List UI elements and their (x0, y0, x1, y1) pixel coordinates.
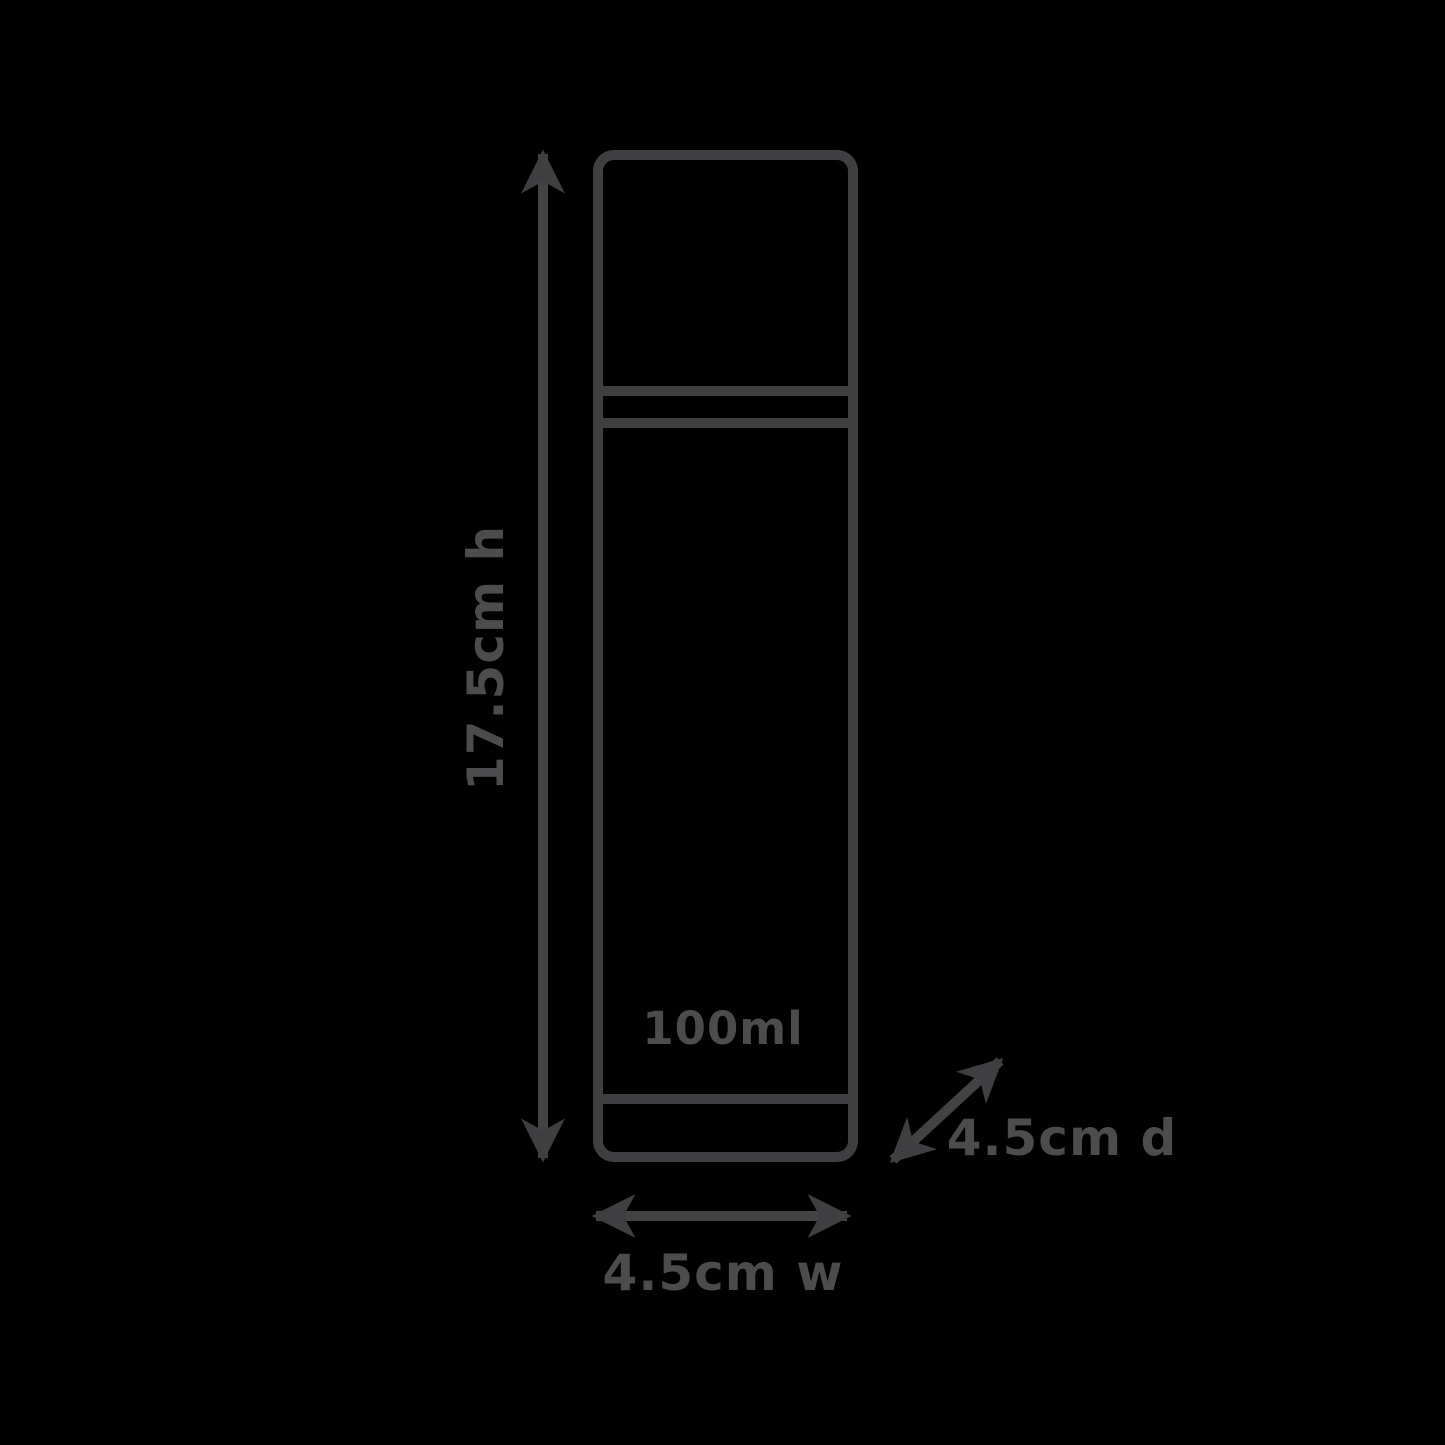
height-label: 17.5cm h (457, 525, 515, 791)
dimension-diagram: 17.5cm h 100ml 4.5cm w 4.5cm d (0, 0, 1445, 1445)
width-label: 4.5cm w (603, 1244, 844, 1302)
dimension-arrows (543, 154, 1000, 1216)
volume-label: 100ml (642, 1002, 803, 1055)
depth-label: 4.5cm d (947, 1109, 1178, 1167)
dimension-diagram-svg: 17.5cm h 100ml 4.5cm w 4.5cm d (0, 0, 1445, 1445)
